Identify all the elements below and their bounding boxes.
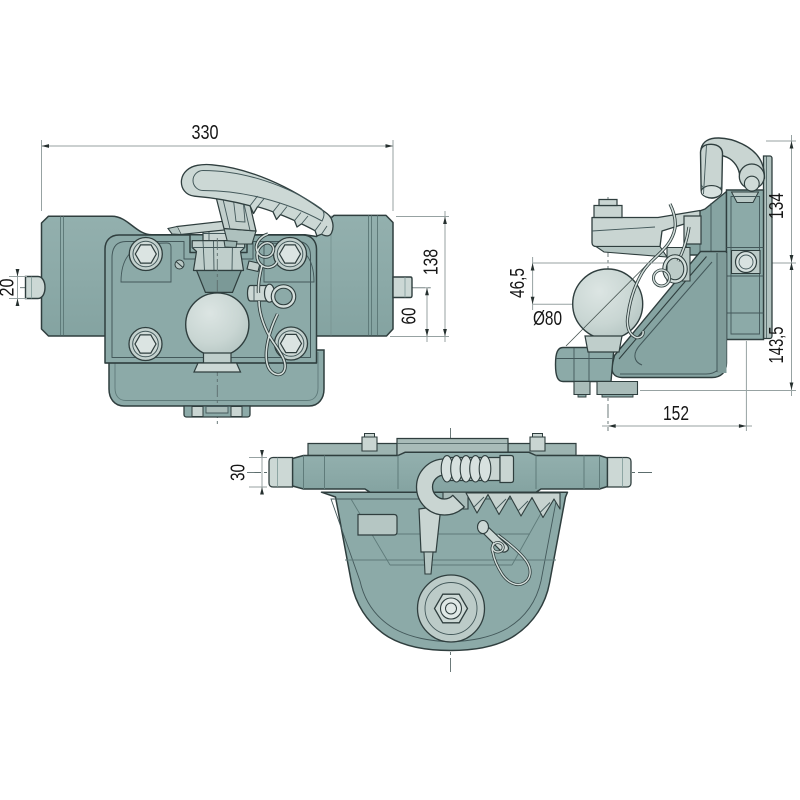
- svg-text:Ø80: Ø80: [533, 308, 562, 330]
- svg-text:134: 134: [766, 193, 788, 219]
- svg-text:30: 30: [228, 464, 250, 481]
- svg-text:60: 60: [399, 308, 421, 325]
- svg-text:20: 20: [0, 279, 19, 297]
- svg-text:138: 138: [421, 249, 443, 275]
- svg-text:143,5: 143,5: [766, 327, 788, 364]
- svg-text:46,5: 46,5: [507, 268, 529, 298]
- svg-text:152: 152: [663, 403, 689, 425]
- svg-text:330: 330: [192, 122, 219, 144]
